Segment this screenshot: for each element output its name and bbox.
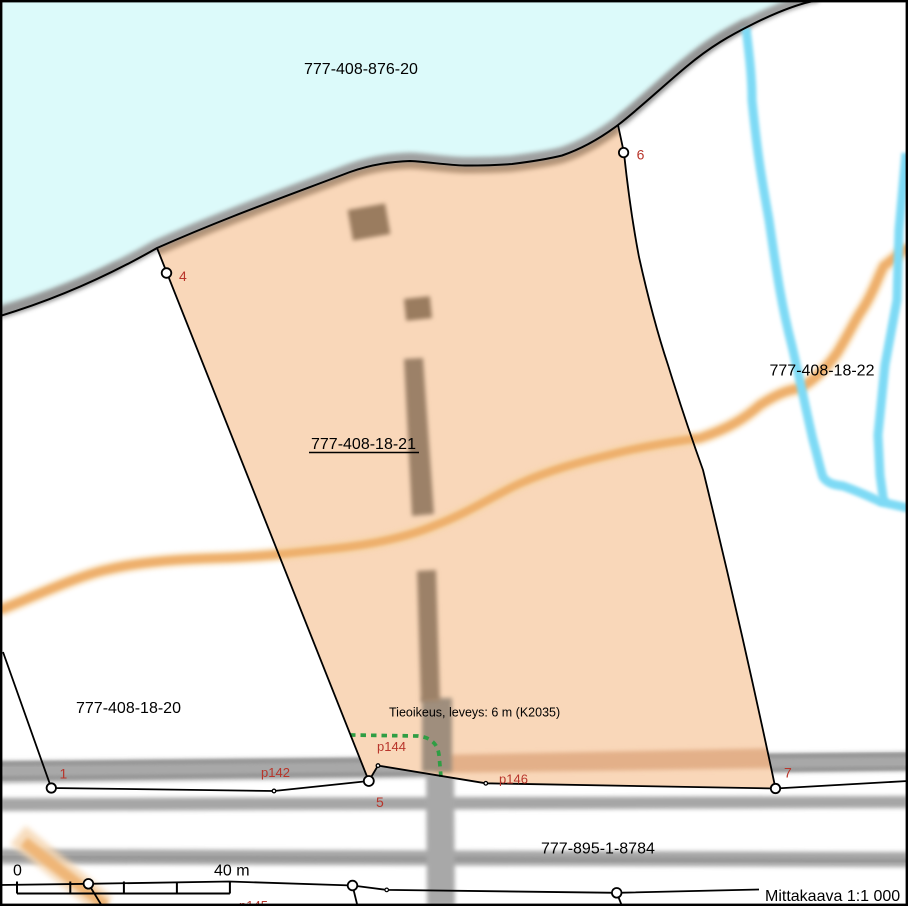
svg-text:40 m: 40 m	[214, 863, 250, 880]
svg-text:Tieoikeus, leveys: 6 m (K2035): Tieoikeus, leveys: 6 m (K2035)	[389, 706, 560, 720]
svg-text:777-895-1-8784: 777-895-1-8784	[541, 841, 655, 858]
svg-text:6: 6	[637, 147, 645, 163]
svg-text:p142: p142	[261, 765, 290, 780]
svg-text:7: 7	[784, 765, 792, 781]
svg-text:777-408-18-22: 777-408-18-22	[770, 363, 875, 380]
svg-text:p146: p146	[499, 772, 528, 787]
svg-text:4: 4	[179, 268, 187, 284]
svg-text:777-408-876-20: 777-408-876-20	[304, 61, 418, 78]
svg-text:777-408-18-20: 777-408-18-20	[76, 700, 181, 717]
svg-text:777-408-18-21: 777-408-18-21	[311, 436, 416, 453]
svg-text:1: 1	[60, 766, 68, 782]
svg-text:5: 5	[376, 794, 384, 810]
svg-text:Mittakaava 1:1 000: Mittakaava 1:1 000	[765, 888, 900, 905]
svg-text:p144: p144	[377, 739, 406, 754]
svg-text:0: 0	[13, 863, 22, 880]
